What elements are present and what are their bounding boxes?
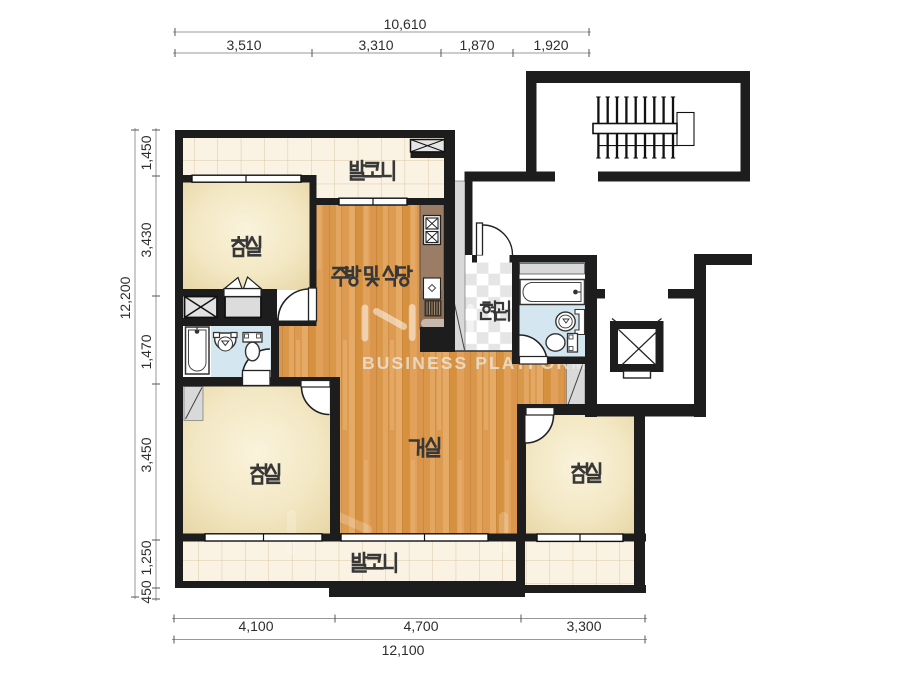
svg-text:12,100: 12,100 (382, 642, 425, 658)
svg-text:1,450: 1,450 (138, 135, 154, 170)
svg-text:3,310: 3,310 (358, 37, 393, 53)
svg-text:450: 450 (138, 580, 154, 604)
svg-text:3,450: 3,450 (138, 437, 154, 472)
svg-text:3,430: 3,430 (138, 222, 154, 257)
svg-text:3,300: 3,300 (566, 618, 601, 634)
svg-text:3,510: 3,510 (226, 37, 261, 53)
svg-text:4,100: 4,100 (238, 618, 273, 634)
svg-text:4,700: 4,700 (403, 618, 438, 634)
svg-text:1,470: 1,470 (138, 334, 154, 369)
svg-text:12,200: 12,200 (117, 276, 133, 319)
svg-text:1,250: 1,250 (138, 540, 154, 575)
svg-text:1,920: 1,920 (533, 37, 568, 53)
svg-text:10,610: 10,610 (384, 16, 427, 32)
svg-text:1,870: 1,870 (459, 37, 494, 53)
